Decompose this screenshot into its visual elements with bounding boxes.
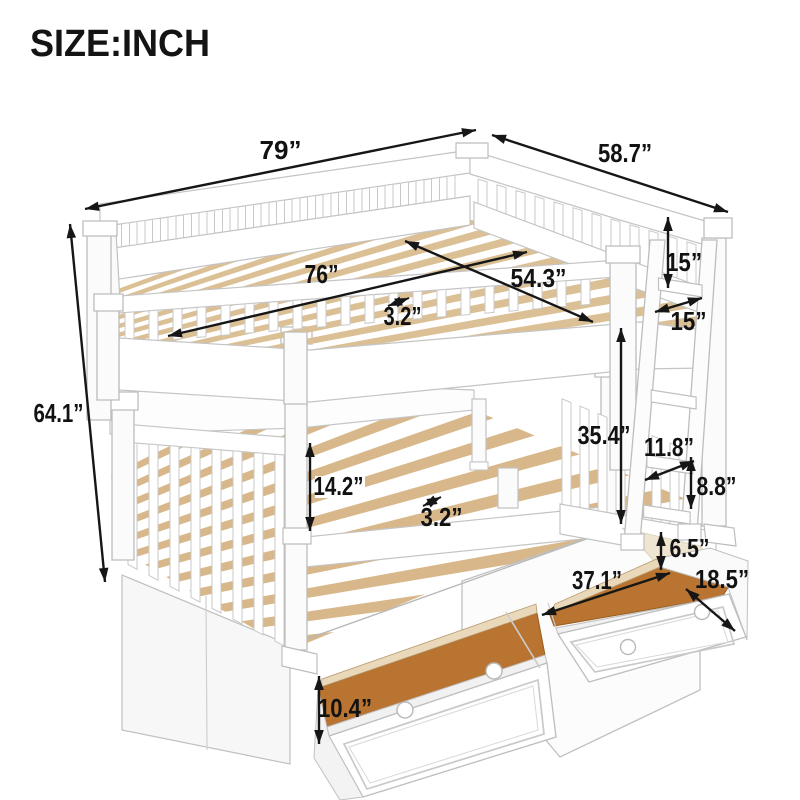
svg-text:15”: 15” [671,306,707,336]
svg-text:15”: 15” [666,247,702,277]
svg-text:10.4”: 10.4” [318,693,372,723]
svg-text:18.5”: 18.5” [695,564,749,594]
svg-text:64.1”: 64.1” [34,398,84,428]
svg-text:14.2”: 14.2” [314,471,364,501]
svg-text:3.2”: 3.2” [421,502,463,532]
svg-text:58.7”: 58.7” [598,138,652,168]
svg-text:79”: 79” [260,135,302,165]
svg-text:37.1”: 37.1” [572,565,622,595]
svg-text:11.8”: 11.8” [644,432,694,462]
svg-text:54.3”: 54.3” [511,263,567,293]
svg-text:8.8”: 8.8” [697,471,737,501]
svg-text:3.2”: 3.2” [384,301,422,331]
svg-text:6.5”: 6.5” [670,533,710,563]
svg-text:35.4”: 35.4” [578,420,631,450]
svg-text:SIZE:INCH: SIZE:INCH [30,23,210,65]
svg-text:76”: 76” [305,259,339,289]
